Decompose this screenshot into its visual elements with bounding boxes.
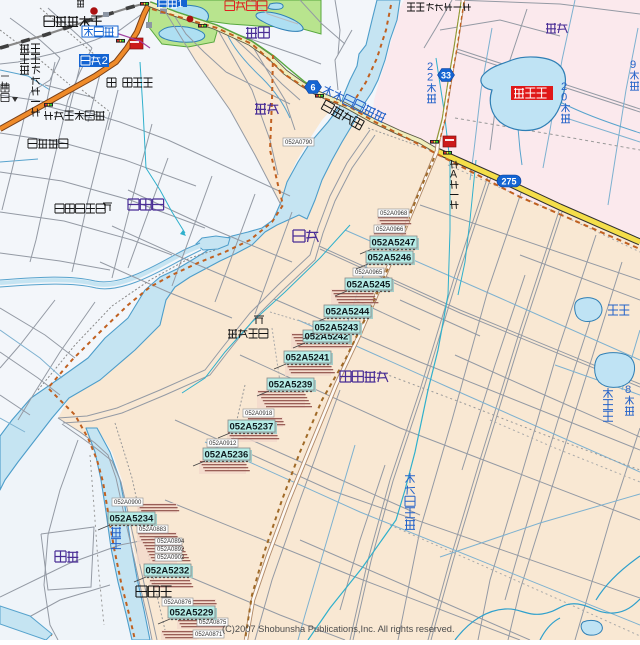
svg-text:0: 0 [561,92,567,104]
svg-text:052A5245: 052A5245 [347,280,392,291]
svg-text:052A0892: 052A0892 [157,547,185,553]
svg-text:052A5239: 052A5239 [269,380,313,391]
svg-text:052A0918: 052A0918 [245,411,273,417]
svg-text:052A5236: 052A5236 [205,450,249,461]
svg-text:8: 8 [625,384,631,396]
svg-text:052A5246: 052A5246 [368,253,412,264]
svg-text:2: 2 [427,72,433,84]
svg-text:052A0902: 052A0902 [157,555,185,561]
svg-text:275: 275 [501,176,516,186]
svg-text:9: 9 [630,59,636,71]
svg-text:A: A [450,169,458,181]
svg-text:052A0912: 052A0912 [209,441,237,447]
svg-text:052A0876: 052A0876 [164,600,192,606]
svg-text:052A0900: 052A0900 [114,500,142,506]
svg-text:2: 2 [102,55,108,67]
svg-text:(C)2007 Shobunsha Publications: (C)2007 Shobunsha Publications,Inc. All … [222,624,455,634]
svg-text:052A0966: 052A0966 [376,227,404,233]
svg-text:33: 33 [441,70,451,80]
svg-text:052A5229: 052A5229 [170,608,214,619]
svg-text:052A5247: 052A5247 [372,238,416,249]
svg-text:052A0883: 052A0883 [139,527,167,533]
svg-text:052A5232: 052A5232 [146,566,190,577]
svg-text:052A0968: 052A0968 [380,211,408,217]
svg-text:1: 1 [178,0,184,10]
svg-text:052A5244: 052A5244 [326,307,371,318]
svg-text:052A5234: 052A5234 [110,514,155,525]
svg-text:052A0965: 052A0965 [355,270,383,276]
svg-text:052A0871: 052A0871 [195,632,223,638]
svg-text:052A0894: 052A0894 [157,539,185,545]
svg-text:052A5241: 052A5241 [286,353,331,364]
svg-text:052A0790: 052A0790 [285,140,313,146]
svg-text:052A5237: 052A5237 [230,422,274,433]
svg-text:6: 6 [310,82,315,92]
svg-text:052A5243: 052A5243 [315,323,359,334]
